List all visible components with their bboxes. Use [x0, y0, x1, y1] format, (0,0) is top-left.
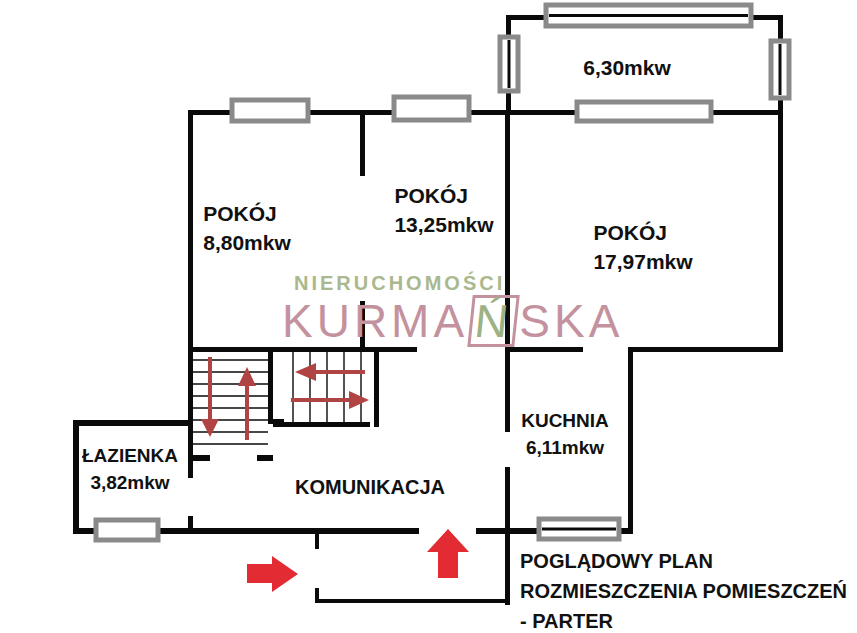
- wall-room3-bottom-wall: [628, 347, 783, 352]
- room-label-balkon: 6,30mkw: [583, 55, 671, 81]
- wall-kitchen-top-wall: [505, 347, 583, 352]
- wall-room-divider-upper: [360, 110, 365, 176]
- stair-arrow-left-head: [295, 363, 316, 381]
- stair-arrow-right-head: [349, 391, 369, 409]
- stair-arrow-down-head: [201, 419, 219, 437]
- room-name: POKÓJ: [394, 184, 468, 207]
- room-label-pokoj-880: POKÓJ 8,80mkw: [203, 201, 291, 256]
- wall-bathroom-left-wall: [73, 420, 79, 534]
- watermark-name-prefix: KURMA: [282, 298, 468, 344]
- watermark-logo-n: Ń: [467, 295, 520, 347]
- wall-bottom-wall-mid: [476, 528, 508, 534]
- watermark-line2: KURMA Ń SKA: [282, 295, 623, 347]
- room-area: 3,82mkw: [82, 471, 178, 495]
- room-label-pokoj-1325: POKÓJ 13,25mkw: [394, 183, 493, 238]
- wall-mid-wall: [505, 110, 510, 432]
- room-area: 17,97mkw: [593, 249, 692, 275]
- floorplan-page: NIERUCHOMOŚCI KURMA Ń SKA POKÓJ 8,80mkw …: [0, 0, 857, 633]
- wall-porch-bottom: [315, 599, 508, 603]
- wall-stairs-mid-wall: [268, 347, 273, 423]
- wall-stairs-right-bottom: [273, 422, 370, 427]
- entry-arrow-right: [247, 556, 298, 592]
- caption-line1: POGLĄDOWY PLAN: [520, 546, 847, 576]
- room-area: 6,11mkw: [521, 436, 609, 460]
- agency-watermark: NIERUCHOMOŚCI KURMA Ń SKA: [282, 272, 623, 347]
- wall-bathroom-door-stub: [188, 516, 193, 534]
- window-balcony-bottom: [577, 102, 711, 121]
- window-room2-top: [394, 97, 469, 120]
- wall-bathroom-top-wall: [73, 420, 188, 426]
- room-area: 6,30mkw: [583, 56, 671, 79]
- window-bathroom: [96, 520, 158, 540]
- wall-left-wall: [188, 110, 193, 352]
- room-name: POKÓJ: [203, 202, 277, 225]
- caption-line2: ROZMIESZCZENIA POMIESZCZEŃ: [520, 576, 847, 606]
- room-area: 8,80mkw: [203, 230, 291, 256]
- room-name: KOMUNIKACJA: [295, 476, 445, 498]
- window-room1-top: [232, 100, 308, 121]
- wall-porch-left-upper: [315, 534, 319, 549]
- wall-kitchen-right-wall: [628, 347, 633, 534]
- room-name: ŁAZIENKA: [82, 445, 178, 466]
- room-label-pokoj-1797: POKÓJ 17,97mkw: [593, 220, 692, 275]
- entry-arrow-up: [427, 529, 469, 578]
- wall-stairs-right-wall: [374, 352, 379, 427]
- stair-arrow-up-head: [238, 367, 256, 386]
- caption-line3: - PARTER: [520, 606, 847, 633]
- wall-kitchen-left-wall: [505, 467, 510, 605]
- wall-corridor-top-wall: [188, 347, 417, 352]
- plan-caption: POGLĄDOWY PLAN ROZMIESZCZENIA POMIESZCZE…: [520, 546, 847, 633]
- wall-stairs-left-bottom-a: [188, 455, 210, 461]
- room-label-komunikacja: KOMUNIKACJA: [295, 476, 445, 499]
- room-name: KUCHNIA: [521, 410, 609, 431]
- room-name: POKÓJ: [593, 221, 667, 244]
- room-area: 13,25mkw: [394, 212, 493, 238]
- wall-stairs-left-bottom-b: [257, 455, 273, 461]
- room-label-lazienka: ŁAZIENKA 3,82mkw: [82, 444, 178, 495]
- room-label-kuchnia: KUCHNIA 6,11mkw: [521, 409, 609, 460]
- watermark-name-suffix: SKA: [519, 298, 623, 344]
- watermark-line1: NIERUCHOMOŚCI: [294, 272, 623, 295]
